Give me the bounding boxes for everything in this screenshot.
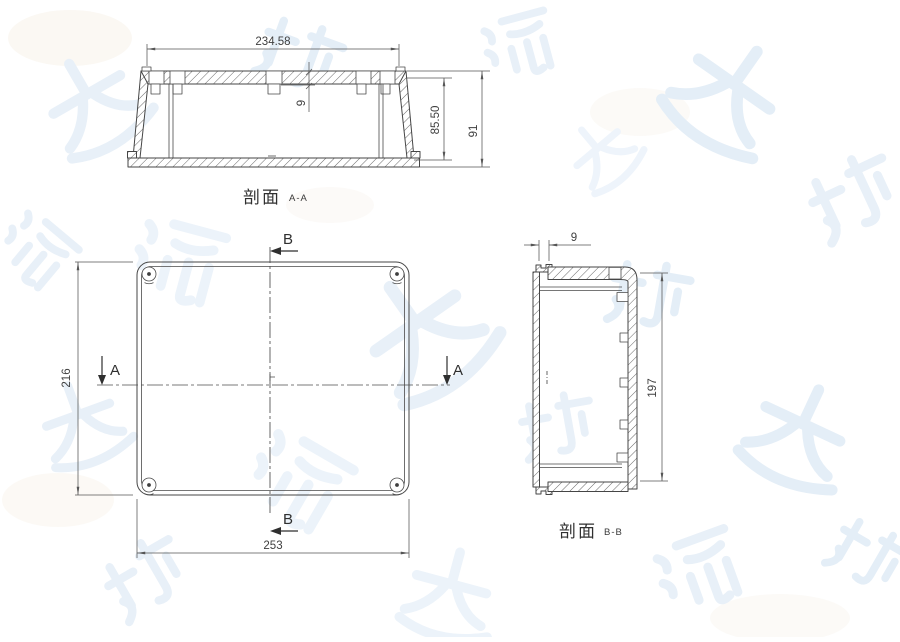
section-bb-geometry xyxy=(533,265,637,495)
aa-boss xyxy=(381,84,390,94)
section-mark-a-label: A xyxy=(110,362,120,379)
aa-boss xyxy=(357,84,366,94)
drawing-sheet: 234.58 9 85.50 91 剖面 A-A xyxy=(0,0,900,637)
section-aa-dimensions: 234.58 9 85.50 91 xyxy=(147,36,490,167)
bb-tab xyxy=(620,333,628,342)
section-arrow-left-icon xyxy=(270,527,281,535)
section-arrow-down-icon xyxy=(98,375,106,385)
section-aa-label-detail: A-A xyxy=(289,193,308,204)
bb-bottom-wall xyxy=(548,482,628,492)
section-aa-label: 剖面 xyxy=(243,188,281,207)
technical-drawing-canvas: 234.58 9 85.50 91 剖面 A-A xyxy=(0,0,900,637)
bb-tab xyxy=(617,293,628,302)
section-mark-a-left: A xyxy=(98,356,120,385)
section-bb-inner-height-dim: 197 xyxy=(647,378,659,397)
section-mark-b-label: B xyxy=(283,231,293,248)
screw-hole xyxy=(142,267,156,284)
aa-boss xyxy=(151,84,160,94)
section-mark-b-label: B xyxy=(283,511,293,528)
bb-left-wall xyxy=(533,272,540,487)
background-watermark xyxy=(0,10,900,637)
bb-tab xyxy=(620,420,628,429)
screw-hole xyxy=(142,478,156,495)
plan-height-dim: 216 xyxy=(61,368,73,387)
plan-width-dim: 253 xyxy=(263,540,282,552)
plan-dimensions: 216 253 xyxy=(61,262,409,558)
section-mark-b-top: B xyxy=(270,231,298,255)
section-bb-flange-dim: 9 xyxy=(571,232,577,244)
bb-tab xyxy=(620,378,628,387)
section-mark-a-label: A xyxy=(453,362,463,379)
section-aa-outer-height-dim: 91 xyxy=(468,125,480,138)
section-arrow-left-icon xyxy=(270,247,281,255)
section-aa-width-dim: 234.58 xyxy=(255,36,290,48)
aa-right-foot xyxy=(411,152,420,159)
aa-left-foot xyxy=(128,152,137,159)
section-aa-boss-depth-dim: 9 xyxy=(296,100,308,106)
section-aa-inner-height-dim: 85.50 xyxy=(430,106,442,135)
aa-center-boss xyxy=(268,84,280,94)
section-bb-title: 剖面 B-B xyxy=(559,522,623,541)
bb-tab xyxy=(617,453,628,462)
section-bb-label: 剖面 xyxy=(559,522,597,541)
aa-bottom-wall xyxy=(128,158,420,167)
screw-hole xyxy=(390,478,404,495)
aa-boss xyxy=(173,84,182,94)
aa-right-wall xyxy=(399,71,414,158)
section-bb-view: 9 197 剖面 B-B xyxy=(524,232,668,541)
section-bb-label-detail: B-B xyxy=(604,527,623,538)
section-aa-geometry xyxy=(128,67,421,167)
center-mark xyxy=(270,374,275,381)
